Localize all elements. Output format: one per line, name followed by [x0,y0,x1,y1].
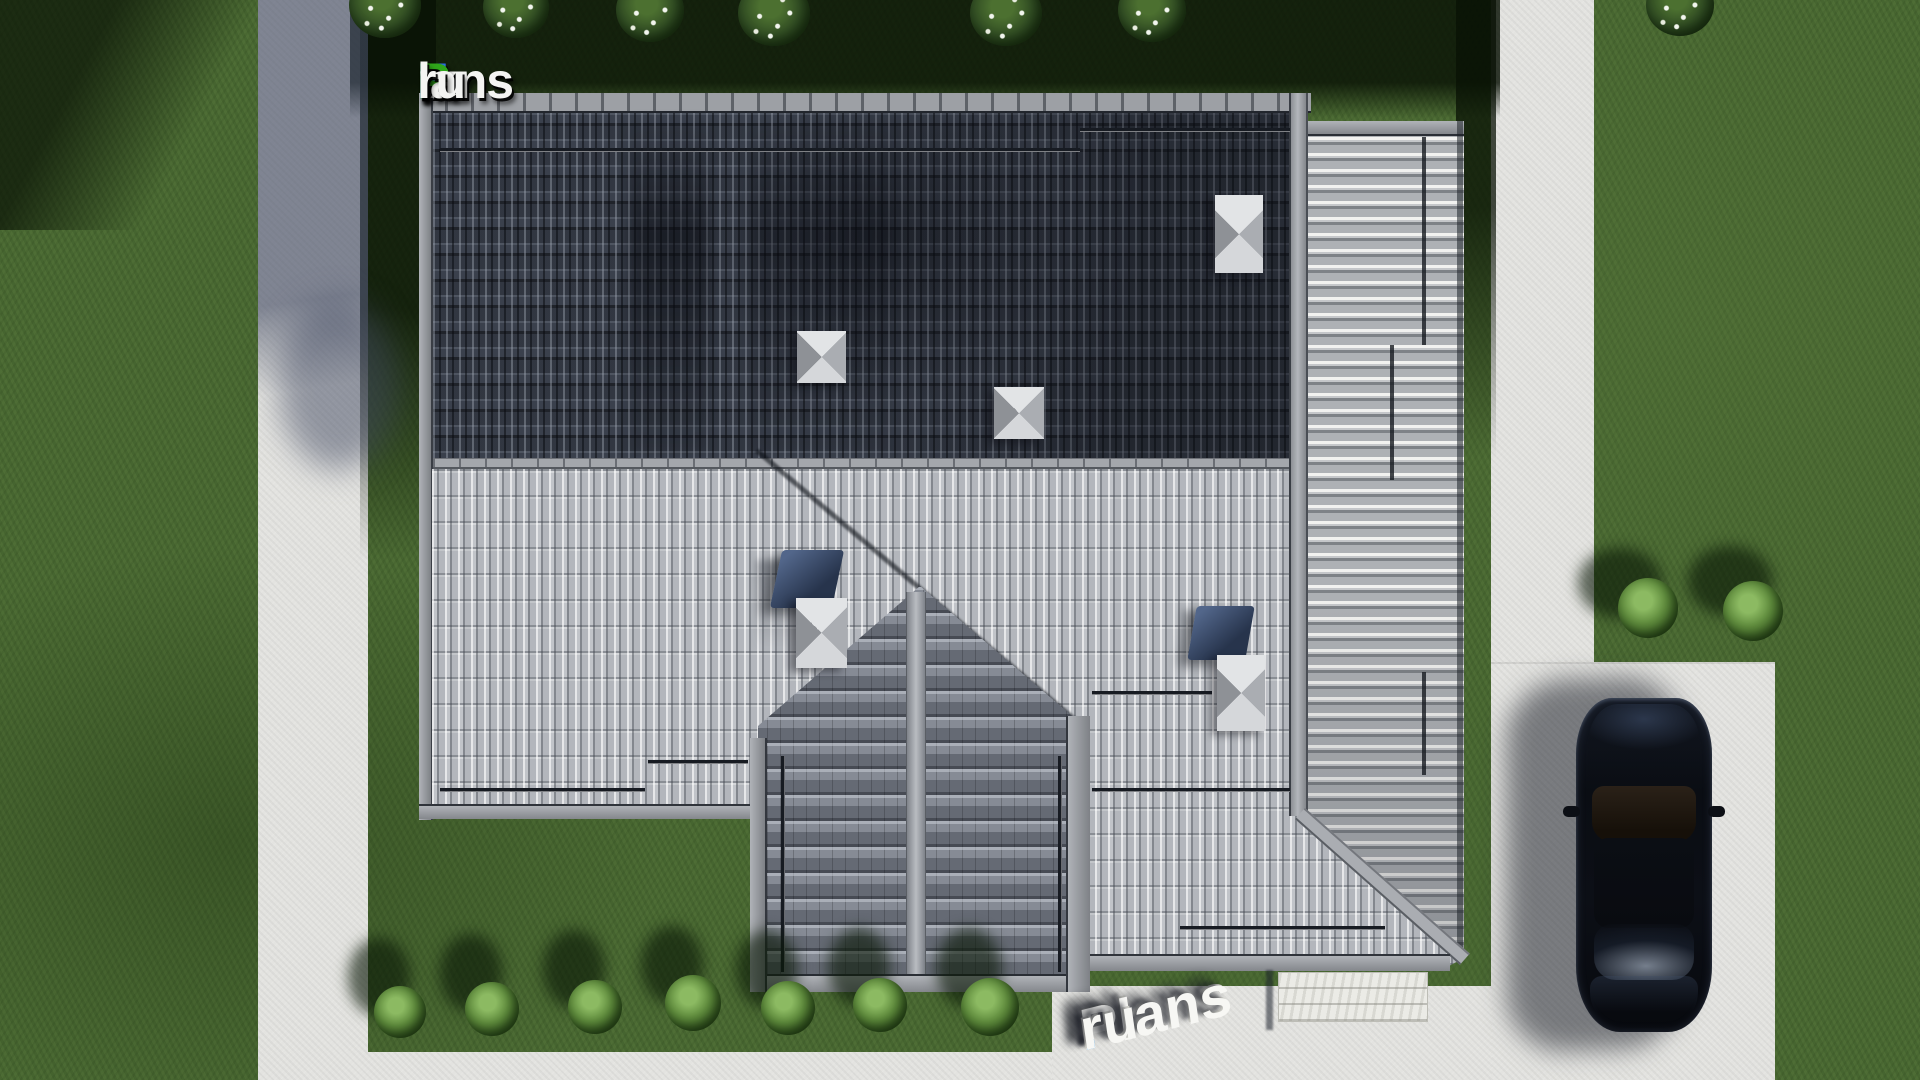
gable-side-fascia-right [1066,716,1090,992]
bush [568,980,622,1034]
car-trunk [1590,976,1698,1028]
roof-valley-flashing [1289,93,1308,816]
car-mirror-left [1563,806,1580,817]
roof-eave-fascia-left [419,804,759,819]
roof-stain-streak [750,115,890,455]
logo-letter: ru [417,52,465,110]
roof-top-ridge-fascia [419,93,1311,113]
car-mirror-right [1708,806,1725,817]
skylight-pyramid [994,387,1044,439]
vent-flue [1187,606,1255,660]
chimney-mid [1217,655,1265,731]
snow-rail [1080,128,1290,132]
wing-gutter-edge [1457,121,1463,959]
gable-roof-rail [1058,756,1062,972]
yard-scene: FixPlans.ru Plans.ru [0,0,1920,1080]
gable-ridge-cap [906,592,926,988]
watermark-letter: ru [1076,984,1142,1065]
bush [665,975,721,1031]
snow-rail [440,788,645,792]
skylight-pyramid [797,331,846,383]
car-windshield [1592,786,1696,842]
wing-batten-seam [1390,345,1394,480]
tree-canopy-shadow [278,300,398,470]
snow-rail [1180,926,1385,930]
bush [374,986,426,1038]
walkway-right [1491,0,1594,665]
downpipe-shadow [1266,970,1273,1030]
bush [761,981,815,1035]
wing-top-fascia [1308,121,1464,136]
bush [961,978,1019,1036]
bush [853,978,907,1032]
roof-eave-fascia-right [1084,954,1450,971]
bush [1723,581,1783,641]
car-rear-glass [1594,924,1694,980]
snow-rail [440,148,1080,152]
wing-batten-seam [1422,672,1426,775]
bush [1618,578,1678,638]
stone-terrace [1278,972,1428,1022]
roof-main-ridge [433,458,1308,469]
driveway-seam [1491,662,1775,664]
bush [465,982,519,1036]
chimney-tall [1215,195,1263,273]
roof-stain-streak [630,115,710,455]
snow-rail [1092,788,1290,792]
car-roof [1594,838,1694,928]
chimney-mid [796,598,847,668]
wing-batten-seam [1422,137,1426,345]
roof-left-fascia [419,93,433,820]
tree-shadow-corner [0,0,300,230]
car-hood [1588,704,1700,788]
snow-rail [1092,691,1212,695]
snow-rail [648,760,748,764]
